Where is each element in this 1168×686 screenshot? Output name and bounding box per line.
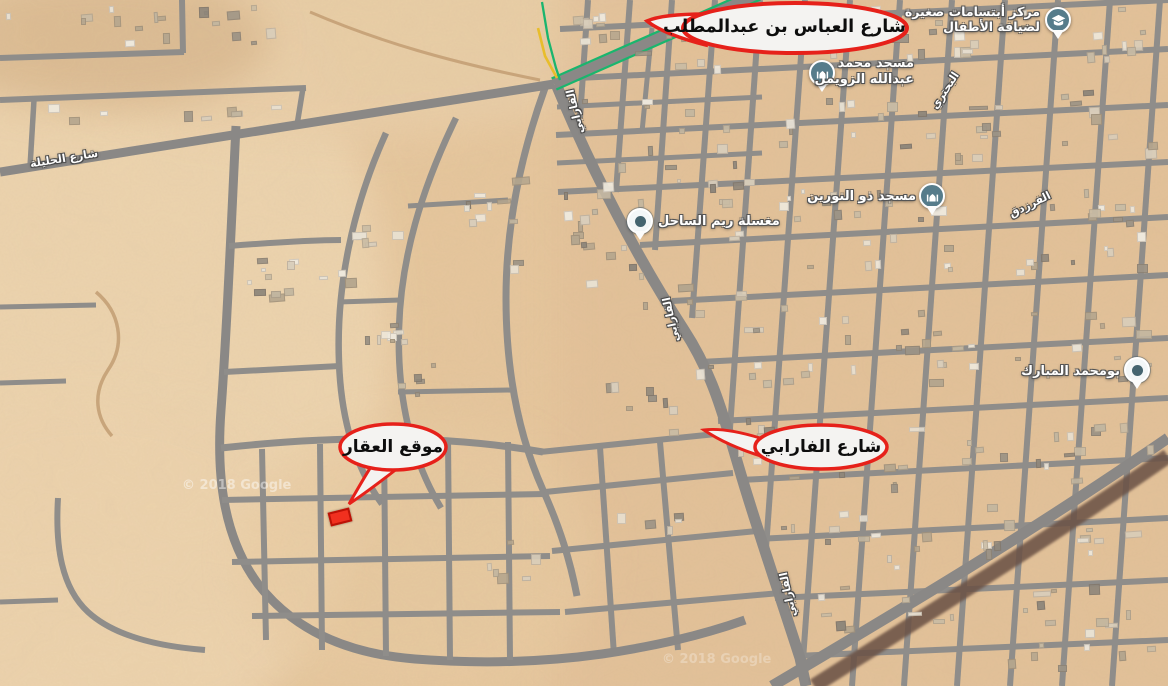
building <box>645 519 656 529</box>
building <box>464 205 470 212</box>
building <box>834 210 842 221</box>
building <box>431 363 436 368</box>
building <box>1104 245 1108 250</box>
building <box>1121 316 1136 327</box>
building <box>474 193 486 198</box>
building <box>949 614 954 621</box>
building <box>610 382 618 393</box>
building <box>890 484 897 493</box>
building <box>781 526 787 530</box>
building <box>821 459 832 468</box>
building <box>1125 530 1142 538</box>
poi-dot-icon <box>1132 365 1143 376</box>
poi-label-reem-laundry: مغسلة ريم الساحل <box>658 214 780 230</box>
satellite-map[interactable]: شارع الحليلة البحتري الفارابي الفارابي ا… <box>0 0 1168 686</box>
building <box>1136 330 1152 339</box>
building <box>840 586 851 591</box>
building <box>764 427 776 436</box>
building <box>469 219 478 228</box>
building <box>109 6 114 13</box>
building <box>1031 652 1038 661</box>
building <box>791 524 796 533</box>
building <box>69 117 80 125</box>
building <box>696 369 705 380</box>
building <box>232 31 242 41</box>
building <box>918 310 925 317</box>
building <box>851 132 856 138</box>
building <box>668 406 677 415</box>
building <box>257 257 268 263</box>
building <box>1096 618 1110 628</box>
building <box>933 618 945 623</box>
building <box>955 153 961 161</box>
building <box>1115 204 1126 212</box>
building <box>937 359 944 368</box>
poi-label-smiles-center: مركز أبتسامات صغيرة لضيافة الأطفال <box>905 4 1040 34</box>
building <box>838 472 845 478</box>
building <box>789 476 800 481</box>
building <box>1085 312 1097 320</box>
building <box>362 238 370 249</box>
building <box>1033 590 1051 597</box>
building <box>1058 665 1067 672</box>
building <box>247 280 252 285</box>
building <box>124 39 134 46</box>
building <box>365 336 370 345</box>
building <box>253 288 265 296</box>
building <box>994 541 1002 551</box>
building <box>629 264 637 271</box>
building <box>970 40 980 49</box>
building <box>345 278 357 289</box>
building <box>564 191 568 199</box>
building <box>904 345 920 354</box>
building <box>319 276 328 281</box>
building <box>678 283 695 292</box>
building <box>826 98 833 106</box>
building <box>114 16 121 27</box>
building <box>1049 204 1054 212</box>
building <box>871 533 881 539</box>
building <box>665 165 677 170</box>
building <box>643 302 648 310</box>
building <box>1086 527 1094 532</box>
building <box>744 179 755 186</box>
building <box>1071 344 1081 353</box>
building <box>1107 133 1117 139</box>
building <box>648 395 657 402</box>
building <box>639 273 645 280</box>
building <box>686 298 693 305</box>
building <box>884 463 896 472</box>
building <box>668 429 678 436</box>
building <box>854 211 862 219</box>
building <box>842 316 850 324</box>
building <box>825 539 832 545</box>
poi-pin-reem-laundry[interactable] <box>627 208 653 234</box>
building <box>531 553 541 564</box>
building <box>763 379 772 387</box>
building <box>685 109 695 117</box>
building <box>1054 432 1059 442</box>
building <box>48 104 60 114</box>
building <box>1126 219 1134 227</box>
building <box>736 290 748 297</box>
building <box>1015 357 1021 361</box>
building <box>1113 217 1123 223</box>
building <box>859 515 868 523</box>
building <box>838 102 845 112</box>
building <box>390 339 395 343</box>
building <box>271 291 281 298</box>
poi-label-bumohammad: بومحمد المبارك <box>1021 364 1120 380</box>
building <box>647 146 653 156</box>
building <box>886 102 897 112</box>
building <box>1083 89 1094 96</box>
building <box>362 225 371 232</box>
building <box>287 261 295 271</box>
building <box>922 531 933 541</box>
building <box>679 128 686 134</box>
building <box>184 111 193 122</box>
building <box>635 51 652 56</box>
building <box>894 565 900 570</box>
building <box>338 269 346 276</box>
building <box>783 378 795 386</box>
building <box>818 594 826 602</box>
building <box>829 526 841 534</box>
building <box>390 323 399 328</box>
building <box>1126 610 1131 620</box>
building <box>381 331 391 339</box>
building <box>621 245 627 252</box>
building <box>1140 29 1147 34</box>
building <box>967 440 972 446</box>
building <box>201 115 213 120</box>
building <box>835 620 845 631</box>
building <box>871 6 881 12</box>
building <box>863 240 871 246</box>
building <box>487 563 493 572</box>
building <box>972 154 983 162</box>
building <box>918 49 925 60</box>
building <box>753 458 762 465</box>
building <box>1023 608 1028 613</box>
building <box>264 274 271 280</box>
building <box>748 373 755 380</box>
building <box>1092 32 1103 41</box>
building <box>1039 643 1044 648</box>
building <box>1130 206 1135 213</box>
building <box>1084 189 1089 198</box>
building <box>212 21 221 27</box>
building <box>1044 463 1050 470</box>
building <box>801 188 806 193</box>
building <box>1102 45 1108 55</box>
building <box>1007 658 1016 668</box>
building <box>1061 93 1069 100</box>
building <box>901 329 910 335</box>
poi-pin-bumohammad[interactable] <box>1124 357 1150 383</box>
building <box>865 260 873 271</box>
building <box>1066 432 1073 442</box>
building <box>522 576 531 581</box>
building <box>779 202 789 211</box>
building <box>618 163 627 174</box>
building <box>807 265 814 270</box>
building <box>847 100 855 108</box>
building <box>496 198 510 204</box>
building <box>753 328 760 333</box>
building <box>1147 445 1155 455</box>
building <box>1091 114 1102 125</box>
building <box>858 535 870 541</box>
building <box>580 38 592 45</box>
building <box>1036 459 1041 468</box>
building <box>722 198 733 208</box>
building <box>717 144 728 154</box>
building <box>695 310 705 318</box>
building <box>875 260 882 270</box>
building <box>199 6 210 17</box>
building <box>985 549 992 560</box>
building <box>1037 601 1045 611</box>
building <box>637 199 643 208</box>
building <box>900 144 912 150</box>
building <box>787 196 791 201</box>
building <box>1064 453 1075 458</box>
mosque-icon <box>925 189 940 204</box>
poi-pin-smiles-center[interactable] <box>1045 7 1071 33</box>
building <box>571 235 580 245</box>
building <box>645 387 653 396</box>
building <box>507 540 514 545</box>
building <box>581 242 587 248</box>
building <box>563 211 573 222</box>
building <box>582 99 588 104</box>
building <box>1127 47 1137 56</box>
education-icon <box>1051 13 1066 28</box>
building <box>284 287 294 295</box>
building <box>414 374 423 382</box>
building <box>509 219 518 225</box>
building <box>987 504 998 512</box>
building <box>723 125 730 133</box>
building <box>392 231 404 240</box>
building <box>733 161 738 169</box>
poi-dot-icon <box>635 216 646 227</box>
building <box>154 12 159 23</box>
building <box>779 141 788 149</box>
building <box>415 392 420 398</box>
building <box>5 13 10 20</box>
building <box>995 105 1003 111</box>
building <box>675 63 687 70</box>
building <box>887 555 892 563</box>
building <box>644 105 650 110</box>
building <box>667 526 673 535</box>
callout-property-location: موقع العقار <box>341 437 445 457</box>
google-watermark: © 2018 Google <box>182 478 291 493</box>
building <box>918 217 924 222</box>
building <box>1045 620 1056 626</box>
building <box>1093 538 1103 545</box>
building <box>1088 550 1093 556</box>
building <box>100 111 108 117</box>
building <box>271 105 282 111</box>
building <box>599 13 607 23</box>
building <box>944 245 954 252</box>
building <box>914 546 920 552</box>
callout-farabi-street: شارع الفارابي <box>756 437 886 457</box>
building <box>967 344 974 349</box>
building <box>1051 589 1057 594</box>
building <box>982 123 991 131</box>
building <box>1004 520 1015 531</box>
building <box>1104 56 1111 63</box>
building <box>226 11 240 21</box>
building <box>583 19 593 29</box>
building <box>952 346 964 352</box>
building <box>781 305 788 312</box>
building <box>401 339 408 345</box>
building <box>714 64 721 74</box>
building <box>1120 423 1128 433</box>
poi-pin-nurain-mosque[interactable] <box>919 183 945 209</box>
building <box>1094 424 1106 433</box>
building <box>626 406 633 411</box>
building <box>746 418 752 426</box>
building <box>610 31 620 41</box>
building <box>586 280 599 288</box>
building <box>908 612 922 617</box>
building <box>1085 628 1095 637</box>
building <box>510 265 519 275</box>
building <box>398 383 406 389</box>
building <box>617 513 626 524</box>
building <box>603 181 614 192</box>
building <box>909 427 925 432</box>
building <box>251 5 257 11</box>
building <box>260 268 266 272</box>
building <box>926 132 936 138</box>
building <box>1062 141 1068 147</box>
building <box>980 135 988 139</box>
building <box>1137 264 1148 273</box>
building <box>1118 7 1126 12</box>
building <box>591 208 597 215</box>
building <box>1016 269 1025 276</box>
building <box>922 339 931 348</box>
building <box>738 448 744 457</box>
building <box>821 613 832 618</box>
building <box>969 106 989 111</box>
building <box>593 16 599 22</box>
building <box>819 317 827 325</box>
building <box>598 34 607 43</box>
building <box>1137 232 1146 242</box>
mosque-icon <box>815 66 830 81</box>
building <box>710 184 717 194</box>
building <box>163 33 171 44</box>
building <box>1100 323 1105 329</box>
building <box>890 234 897 243</box>
building <box>754 362 762 370</box>
building <box>1074 447 1086 456</box>
poi-label-nurain-mosque: مسجد ذو النورين <box>807 189 916 205</box>
building <box>1077 538 1089 544</box>
building <box>975 447 985 454</box>
building <box>1071 259 1076 265</box>
building <box>1000 453 1008 462</box>
building <box>786 119 795 130</box>
building <box>839 511 849 519</box>
building <box>969 363 980 370</box>
building <box>732 182 744 191</box>
building <box>1089 209 1101 218</box>
building <box>896 345 902 351</box>
building <box>487 202 493 211</box>
building <box>1148 142 1158 151</box>
building <box>606 252 616 260</box>
building <box>1083 644 1090 651</box>
building <box>1088 583 1099 594</box>
building <box>266 28 277 39</box>
building <box>898 465 908 470</box>
building <box>580 214 591 224</box>
building <box>697 59 705 67</box>
building <box>511 176 529 186</box>
building <box>675 519 682 524</box>
building <box>135 25 143 31</box>
building <box>878 112 885 120</box>
building <box>901 597 910 604</box>
building <box>948 266 954 272</box>
building <box>677 179 681 183</box>
building <box>992 131 1001 138</box>
building <box>794 216 802 223</box>
building <box>642 99 653 105</box>
building <box>929 379 944 388</box>
building <box>251 41 257 46</box>
callout-abbas-street: شارع العباس بن عبدالمطلب <box>684 17 906 37</box>
building <box>962 49 973 54</box>
building <box>962 458 973 465</box>
building <box>801 371 810 379</box>
building <box>1040 254 1048 262</box>
building <box>1118 651 1125 661</box>
building <box>81 18 86 25</box>
building <box>493 569 499 577</box>
building <box>1087 51 1096 62</box>
building <box>1026 259 1034 266</box>
building <box>845 335 851 345</box>
building <box>1147 646 1157 653</box>
building <box>708 365 714 370</box>
google-watermark: © 2018 Google <box>662 652 771 667</box>
